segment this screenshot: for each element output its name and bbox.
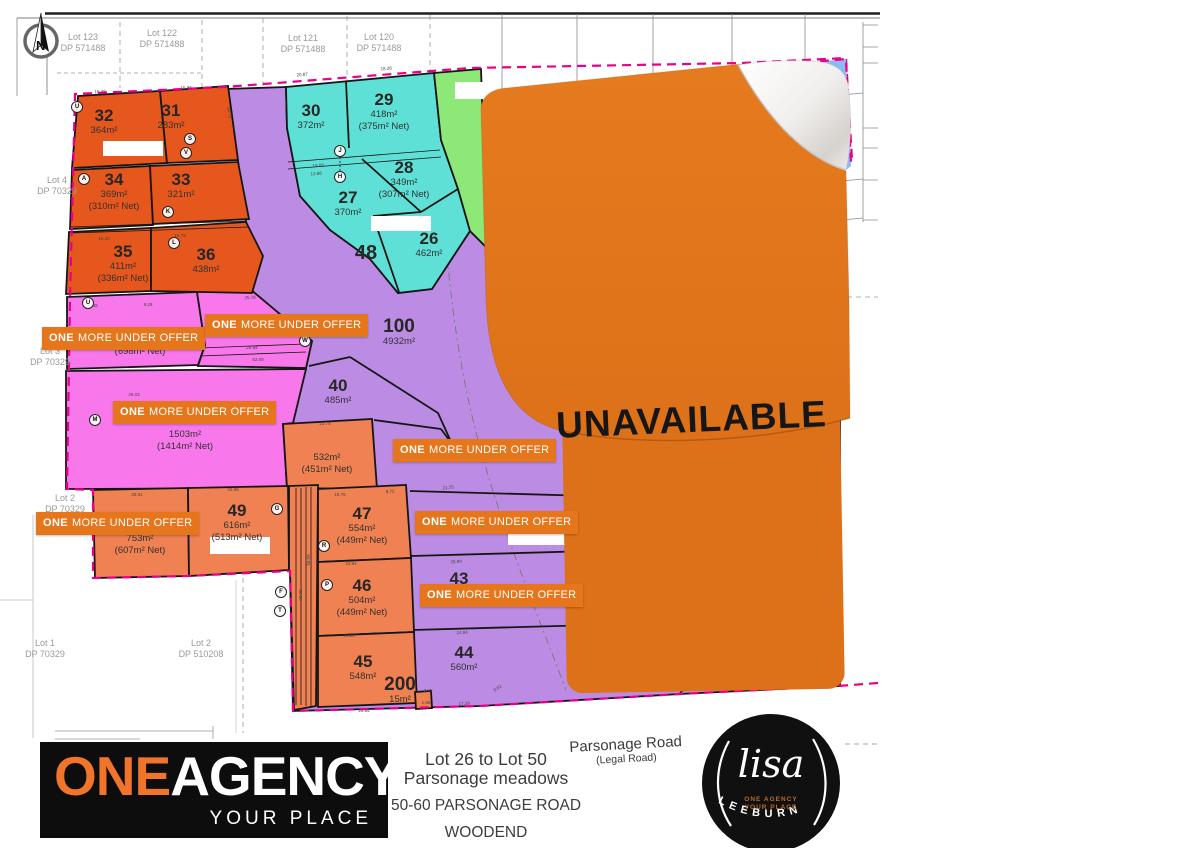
easement-marker: L: [168, 237, 180, 249]
lot-label: 36 438m²: [193, 246, 220, 276]
agency-tagline: YOUR PLACE: [210, 808, 372, 830]
neighbor-label: Lot 123DP 571488: [61, 32, 106, 54]
lot-label: 43: [450, 570, 469, 588]
neighbor-label: Lot 2DP 510208: [179, 638, 224, 660]
neighbor-label: Lot 4DP 70329: [37, 175, 77, 197]
suburb: WOODEND: [376, 824, 596, 842]
dimension-label: 24.94: [343, 624, 354, 642]
dimension-label: 24.84: [358, 699, 369, 717]
neighbor-label: Lot 121DP 571488: [281, 33, 326, 55]
lot-label: 30 372m²: [298, 102, 325, 132]
easement-marker: R: [318, 540, 330, 552]
lot-label: 31 283m²: [158, 102, 185, 132]
dimension-label: 20.87: [296, 63, 308, 82]
dimension-label: 17.29: [458, 692, 470, 711]
lot-label: 29 418m² (375m² Net): [359, 91, 410, 132]
dimension-label: 25.99: [227, 478, 238, 496]
agency-logo: ONEAGENCY YOUR PLACE: [40, 742, 388, 838]
easement-marker: U: [71, 101, 83, 113]
dimension-label: 13.66: [310, 162, 322, 181]
lot-label: 44 560m²: [451, 644, 478, 674]
dimension-label: 19.09: [312, 154, 324, 173]
easement-marker: J: [334, 145, 346, 157]
easement-marker: W: [299, 335, 311, 347]
lot-label: 28 349m² (307m² Net): [379, 159, 430, 200]
dimension-label: 60.85: [302, 554, 320, 565]
lot-label: 1503m² (1414m² Net): [157, 429, 213, 452]
agent-small-line2: YOUR PLACE: [744, 804, 797, 812]
easement-marker: M: [89, 414, 101, 426]
dimension-label: 25.78: [244, 286, 256, 304]
road-label: Parsonage Road (Legal Road): [569, 734, 683, 768]
lot-label: (698m² Net): [115, 346, 166, 358]
under-offer-banner: ONEMORE UNDER OFFER: [420, 584, 583, 607]
dimension-label: 1.95: [422, 691, 431, 709]
easement-marker: K: [162, 206, 174, 218]
lot-label: 49 616m² (513m² Net): [212, 502, 263, 543]
under-offer-banner: ONEMORE UNDER OFFER: [113, 401, 276, 424]
dimension-label: 16.40: [98, 227, 109, 245]
lot-label: 46 504m² (449m² Net): [337, 577, 388, 618]
dimension-label: 25.99: [450, 550, 462, 568]
agency-logo-one: ONE: [54, 745, 170, 807]
neighbor-label: Lot 3DP 70329: [30, 346, 70, 368]
dimension-label: 24.84: [456, 621, 468, 639]
under-offer-banner: ONEMORE UNDER OFFER: [393, 439, 556, 462]
dimension-label: 16.75: [334, 483, 345, 501]
listing-title: Lot 26 to Lot 50 Parsonage meadows 50-60…: [376, 750, 596, 842]
dimension-label: 20.48: [86, 294, 97, 312]
dimension-label: 62.09: [252, 348, 263, 366]
agent-small-line1: ONE AGENCY: [744, 796, 797, 804]
lot-label: 27 370m²: [335, 189, 362, 219]
dimension-label: 25.91: [131, 483, 142, 501]
lot-label: 35 411m² (336m² Net): [98, 243, 149, 284]
dimension-label: 9.29: [144, 293, 153, 311]
lot-label: 753m² (607m² Net): [115, 533, 166, 556]
dimension-label: 50.06: [294, 589, 312, 600]
agency-logo-agency: AGENCY: [170, 745, 399, 807]
lot-label: 200 15m²: [384, 676, 416, 706]
lot-range: Lot 26 to Lot 50: [376, 750, 596, 769]
lot-label: 33 321m²: [168, 171, 195, 201]
subdivision-flyer: N LEEBURN Lot 123DP 571488 Lot 122DP 571…: [0, 0, 1200, 848]
dimension-label: 29.94: [246, 336, 257, 354]
dimension-label: 16.94: [180, 76, 192, 94]
lot-label: 34 369m² (310m² Net): [89, 171, 140, 212]
lot-label: 48: [355, 244, 377, 262]
agent-script-name: lisa: [738, 742, 804, 786]
neighbor-label: Lot 122DP 571488: [140, 28, 185, 50]
easement-marker: F: [275, 586, 287, 598]
lot-label: 45 548m²: [350, 653, 377, 683]
easement-marker: H: [334, 171, 346, 183]
estate-name: Parsonage meadows: [376, 769, 596, 788]
neighbor-label: Lot 2DP 70329: [45, 493, 85, 515]
neighbor-label: Lot 120DP 571488: [357, 32, 402, 54]
dimension-label: 15.79: [174, 224, 185, 242]
under-offer-banner: ONEMORE UNDER OFFER: [36, 512, 199, 535]
under-offer-banner: ONEMORE UNDER OFFER: [42, 327, 205, 350]
dimension-label: 2.95: [424, 679, 433, 697]
dimension-label: 21.75: [442, 476, 454, 495]
dimension-label: 23.74: [319, 412, 330, 430]
lot-label: 32 364m²: [91, 107, 118, 137]
easement-marker: A: [78, 173, 90, 185]
dimension-label: 8.75: [385, 480, 395, 498]
lot-label: 26 462m²: [416, 230, 443, 260]
dimension-label: 18.26: [380, 57, 392, 76]
under-offer-banner: ONEMORE UNDER OFFER: [415, 511, 578, 534]
neighbor-label: Lot 1DP 70329: [25, 638, 65, 660]
unavailable-label: UNAVAILABLE: [548, 393, 835, 447]
street-address: 50-60 PARSONAGE ROAD: [376, 797, 596, 815]
agent-logo-small-text: ONE AGENCY YOUR PLACE: [744, 796, 797, 812]
easement-marker: P: [321, 579, 333, 591]
easement-marker: G: [271, 503, 283, 515]
easement-marker: V: [180, 147, 192, 159]
dimension-label: 8.62: [487, 676, 505, 696]
map-overlay: Lot 123DP 571488 Lot 122DP 571488 Lot 12…: [0, 0, 1200, 848]
lot-label: 40 485m²: [325, 377, 352, 407]
dimension-label: 24.94: [345, 552, 356, 570]
lot-label: 532m² (451m² Net): [302, 452, 353, 475]
dimension-label: 16.48: [94, 80, 106, 98]
lot-label: 100 4932m²: [383, 318, 415, 348]
lot-label: 47 554m² (449m² Net): [337, 505, 388, 546]
dimension-label: 18.75: [222, 105, 242, 119]
dimension-label: 26.03: [128, 383, 139, 401]
agency-logo-text: ONEAGENCY: [54, 744, 400, 808]
easement-marker: U: [82, 297, 94, 309]
easement-marker: S: [184, 133, 196, 145]
under-offer-banner: ONEMORE UNDER OFFER: [205, 314, 368, 337]
easement-marker: T: [274, 605, 286, 617]
